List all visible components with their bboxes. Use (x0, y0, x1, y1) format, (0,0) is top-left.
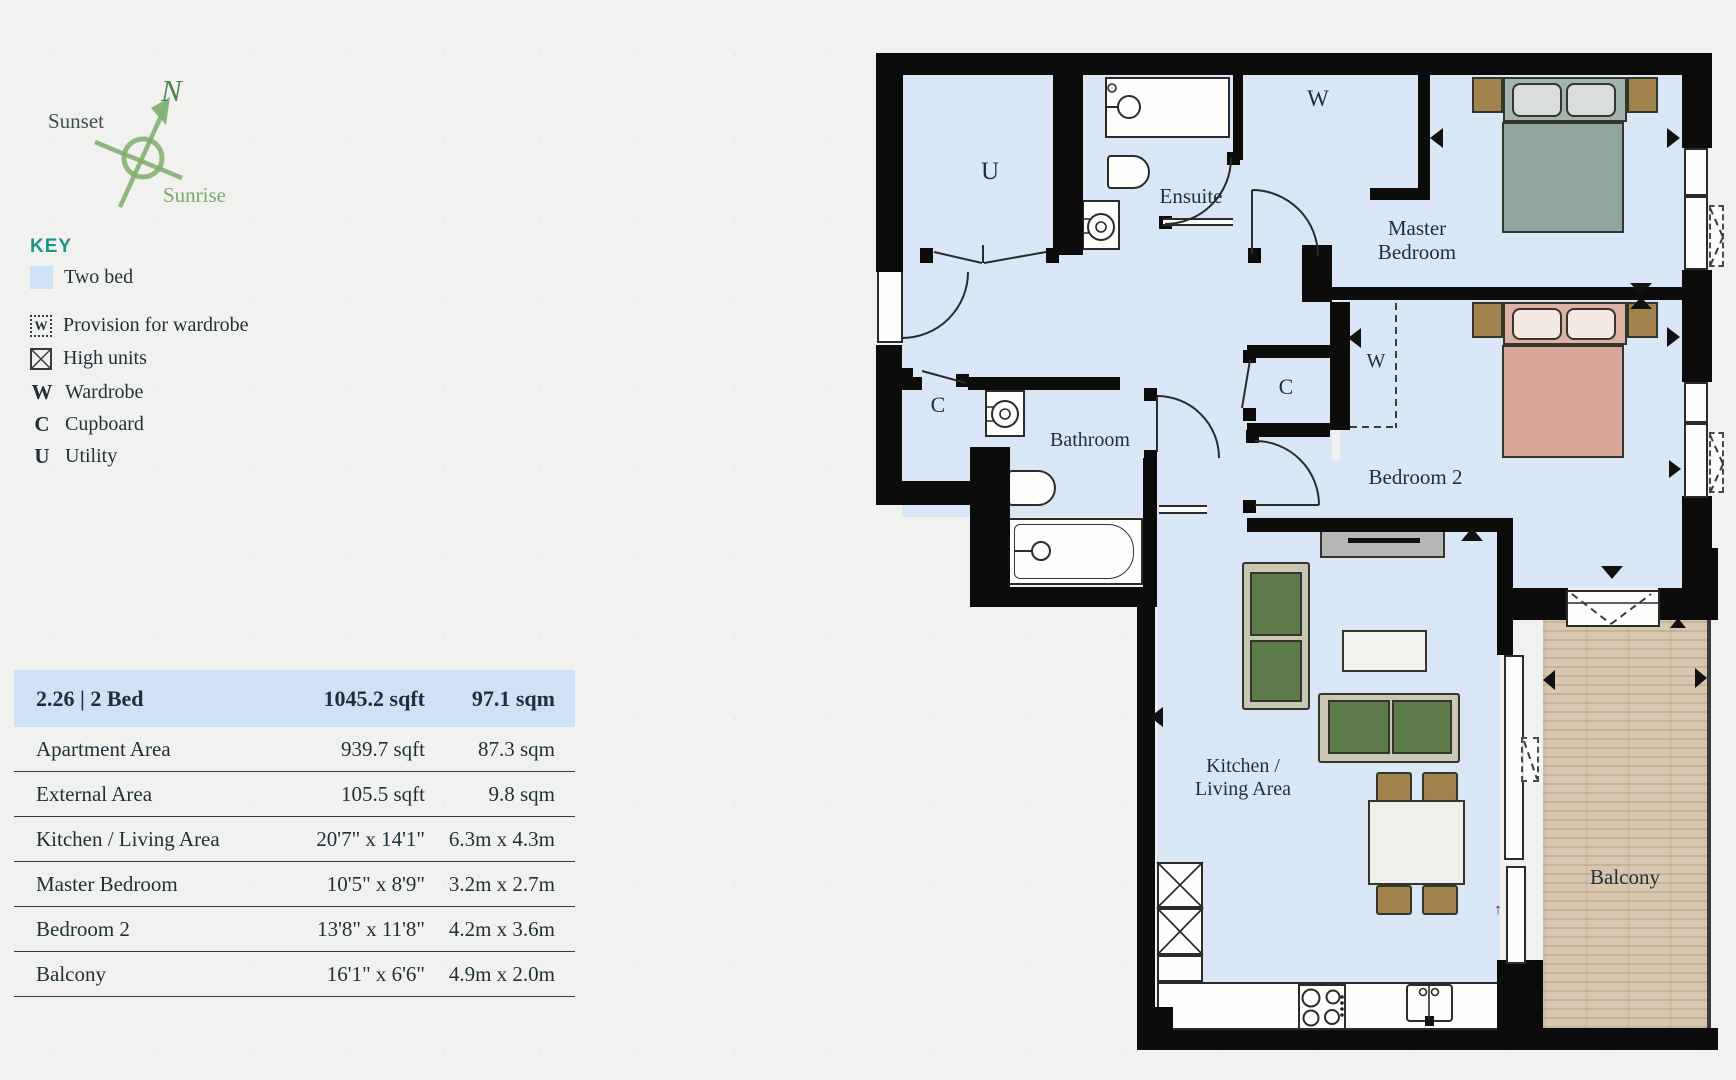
sink-tap-dot (1420, 989, 1427, 996)
bathroom-door (1157, 396, 1219, 458)
bath-tap-icon (1032, 542, 1050, 560)
direction-marker (1543, 670, 1555, 690)
master-window-swing-dash (1710, 208, 1723, 266)
room-label-bedroom2-wardrobe: W (1356, 350, 1396, 373)
hob-burner (1303, 990, 1320, 1007)
utility-double-door (934, 245, 1046, 263)
direction-marker (1670, 618, 1686, 628)
direction-marker (1348, 328, 1361, 348)
room-label-bedroom2-cupboard: C (1266, 375, 1306, 400)
bedroom2-cupboard-door-leaf (1242, 360, 1250, 408)
direction-marker (1150, 707, 1163, 727)
room-label-master-wardrobe: W (1300, 86, 1336, 112)
room-label-balcony: Balcony (1575, 866, 1675, 890)
hob-burner (1327, 991, 1340, 1004)
direction-marker (1461, 528, 1483, 541)
room-label-kitchen-living: Kitchen / Living Area (1180, 755, 1306, 800)
direction-marker (1430, 128, 1443, 148)
direction-marker (1667, 128, 1680, 148)
ensuite-tap-dot (1108, 84, 1116, 92)
hob-burner (1304, 1011, 1319, 1026)
room-label-bedroom2: Bedroom 2 (1353, 466, 1478, 490)
direction-marker (1601, 566, 1623, 579)
entrance-door-arc (902, 272, 968, 338)
balcony-door-swing-dash (1524, 741, 1537, 779)
direction-marker (1630, 283, 1652, 295)
high-units-x-marks (1157, 862, 1203, 955)
floor-plan: U Ensuite W Master Bedroom Bathroom C C … (0, 0, 1736, 1080)
direction-marker (1669, 460, 1681, 478)
direction-marker (1630, 297, 1652, 309)
floorplan-page: { "compass": { "north": "N", "sunset": "… (0, 0, 1736, 1080)
room-label-utility: U (975, 158, 1005, 186)
sink-tap-dot (1432, 989, 1439, 996)
balcony-door-arrow: ↑ (1488, 902, 1508, 919)
room-label-master-bedroom: Master Bedroom (1352, 217, 1482, 264)
balcony-window-swing-dash (1572, 594, 1651, 624)
bedroom2-window-swing-dash (1710, 435, 1723, 493)
washer-drum-icon (1088, 214, 1114, 240)
washer-drum-icon (992, 401, 1018, 427)
direction-marker (1667, 327, 1680, 347)
hall-cupboard-door-leaf (922, 371, 966, 383)
bedroom2-door (1255, 441, 1319, 505)
master-door (1252, 190, 1318, 256)
room-label-ensuite: Ensuite (1146, 185, 1236, 209)
room-label-bathroom: Bathroom (1030, 429, 1150, 452)
room-label-hall-cupboard: C (921, 393, 955, 418)
hob-burner (1325, 1010, 1339, 1024)
direction-marker (1695, 668, 1707, 688)
ensuite-basin-icon (1118, 96, 1140, 118)
